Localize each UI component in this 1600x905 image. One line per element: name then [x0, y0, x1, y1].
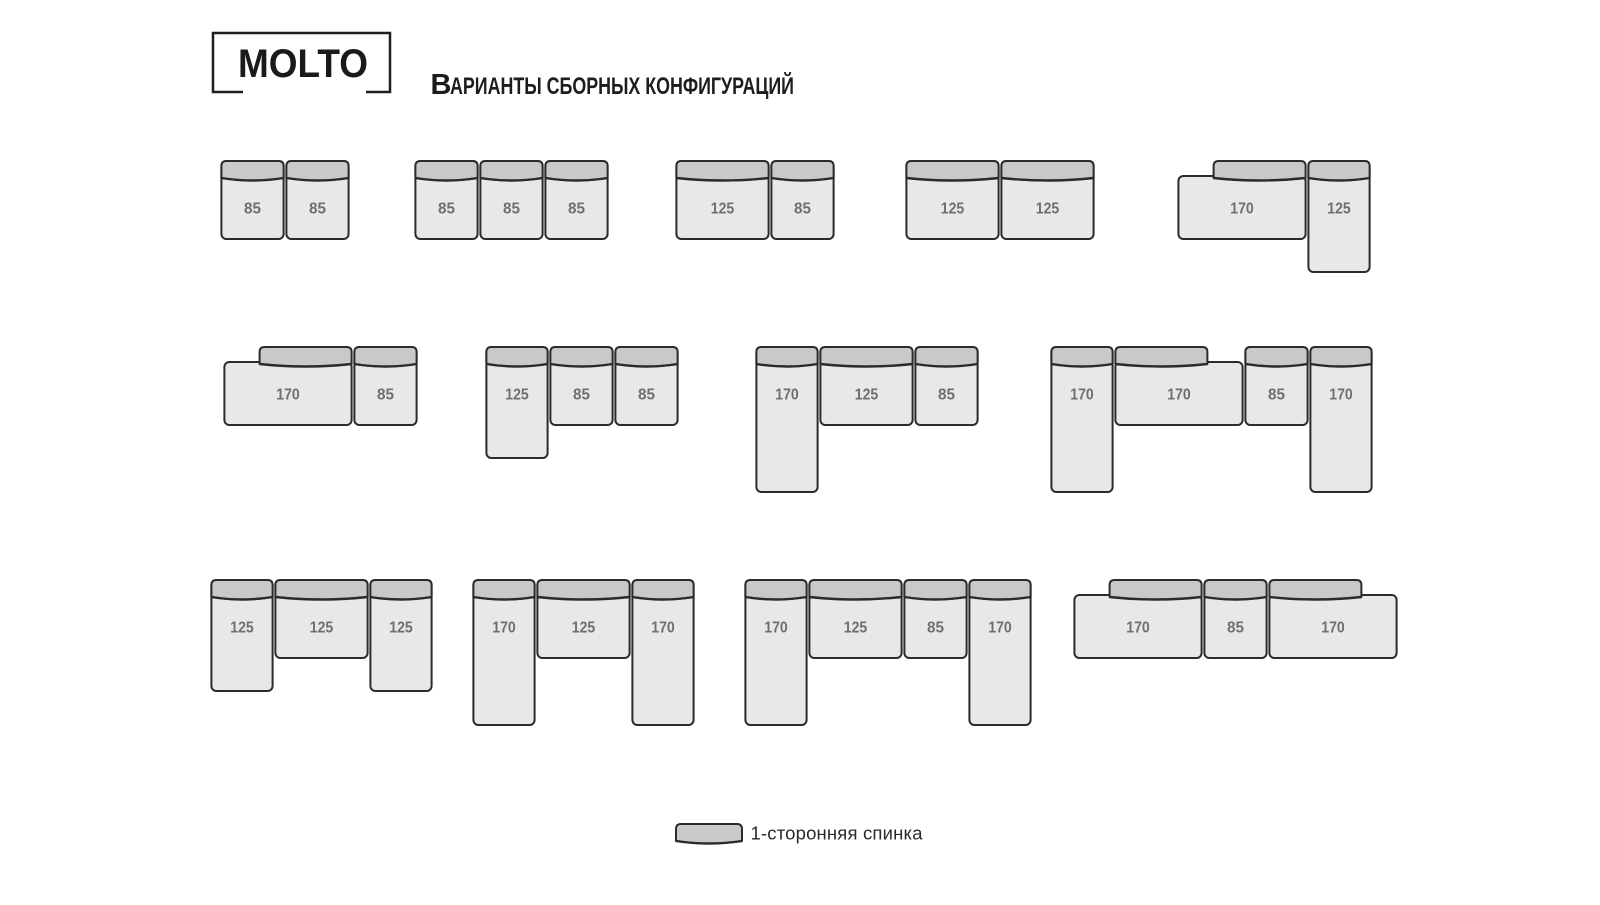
- svg-text:85: 85: [377, 387, 394, 404]
- svg-text:1-сторонняя спинка: 1-сторонняя спинка: [751, 823, 924, 844]
- svg-text:125: 125: [941, 201, 965, 218]
- svg-text:125: 125: [505, 387, 529, 404]
- svg-text:170: 170: [1230, 201, 1254, 218]
- svg-text:85: 85: [309, 201, 326, 218]
- svg-text:85: 85: [438, 201, 455, 218]
- svg-text:170: 170: [276, 387, 300, 404]
- svg-text:170: 170: [775, 387, 799, 404]
- svg-text:85: 85: [938, 387, 955, 404]
- svg-text:MOLTO: MOLTO: [238, 42, 368, 86]
- svg-text:85: 85: [1268, 387, 1285, 404]
- svg-text:170: 170: [988, 620, 1012, 637]
- svg-text:125: 125: [844, 620, 868, 637]
- svg-text:125: 125: [1036, 201, 1060, 218]
- svg-text:125: 125: [389, 620, 413, 637]
- svg-text:170: 170: [1126, 620, 1150, 637]
- svg-text:85: 85: [568, 201, 585, 218]
- svg-text:125: 125: [310, 620, 334, 637]
- svg-text:170: 170: [492, 620, 516, 637]
- svg-text:170: 170: [764, 620, 788, 637]
- svg-text:125: 125: [572, 620, 596, 637]
- svg-text:125: 125: [1327, 201, 1351, 218]
- svg-text:125: 125: [230, 620, 254, 637]
- svg-text:АРИАНТЫ СБОРНЫХ КОНФИГУРАЦИЙ: АРИАНТЫ СБОРНЫХ КОНФИГУРАЦИЙ: [450, 72, 794, 100]
- svg-text:85: 85: [573, 387, 590, 404]
- svg-text:125: 125: [711, 201, 735, 218]
- svg-text:170: 170: [1167, 387, 1191, 404]
- svg-text:170: 170: [1321, 620, 1345, 637]
- svg-text:125: 125: [855, 387, 879, 404]
- svg-text:170: 170: [651, 620, 675, 637]
- svg-text:85: 85: [503, 201, 520, 218]
- svg-text:85: 85: [638, 387, 655, 404]
- svg-text:85: 85: [927, 620, 944, 637]
- svg-text:170: 170: [1329, 387, 1353, 404]
- svg-text:85: 85: [244, 201, 261, 218]
- svg-text:170: 170: [1070, 387, 1094, 404]
- svg-text:85: 85: [1227, 620, 1244, 637]
- svg-text:В: В: [431, 69, 452, 101]
- svg-text:85: 85: [794, 201, 811, 218]
